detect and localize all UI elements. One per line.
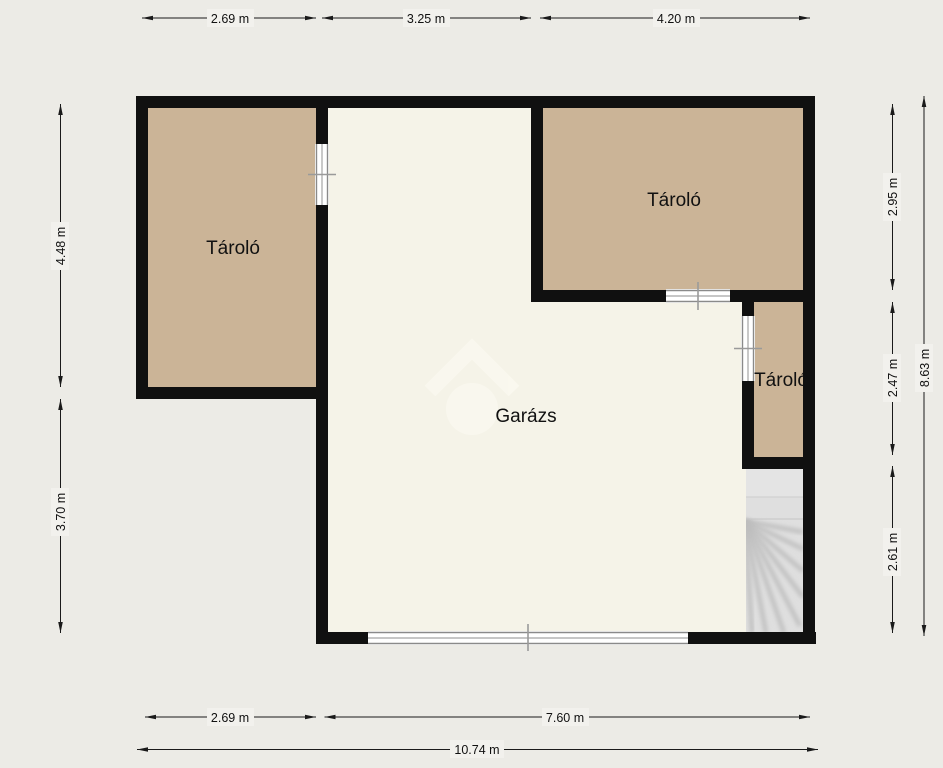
svg-text:3.70 m: 3.70 m: [54, 493, 68, 531]
svg-text:2.61 m: 2.61 m: [886, 533, 900, 571]
svg-text:7.60 m: 7.60 m: [546, 711, 584, 725]
svg-text:Tároló: Tároló: [206, 238, 260, 259]
svg-text:2.69 m: 2.69 m: [211, 711, 249, 725]
svg-text:Tároló: Tároló: [754, 370, 808, 391]
svg-text:2.69 m: 2.69 m: [211, 12, 249, 26]
svg-text:Tároló: Tároló: [647, 190, 701, 211]
svg-text:2.95 m: 2.95 m: [886, 178, 900, 216]
svg-text:8.63 m: 8.63 m: [918, 349, 932, 387]
svg-text:Garázs: Garázs: [495, 406, 556, 427]
svg-text:4.20 m: 4.20 m: [657, 12, 695, 26]
svg-text:10.74 m: 10.74 m: [454, 743, 499, 757]
svg-text:2.47 m: 2.47 m: [886, 359, 900, 397]
svg-text:4.48 m: 4.48 m: [54, 227, 68, 265]
svg-text:3.25 m: 3.25 m: [407, 12, 445, 26]
